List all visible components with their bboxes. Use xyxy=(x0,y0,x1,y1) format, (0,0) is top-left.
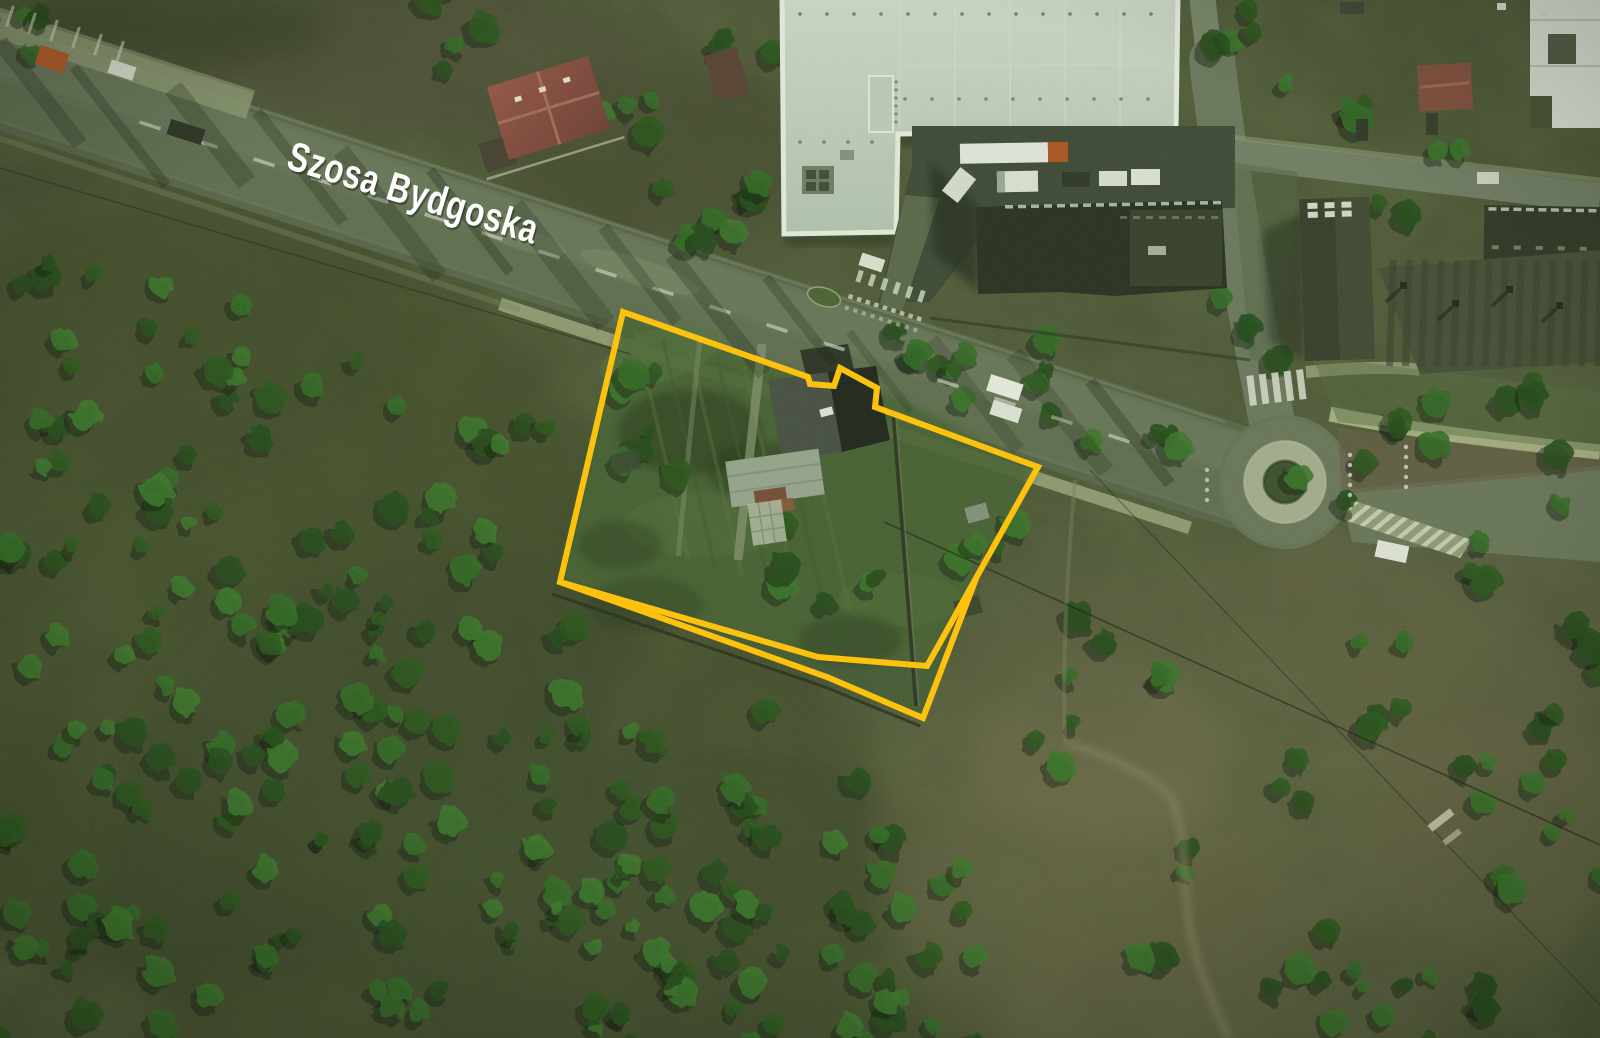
aerial-map-image: Szosa Bydgoska Szosa Bydgoska xyxy=(0,0,1600,1038)
aerial-photo-canvas: Szosa Bydgoska Szosa Bydgoska xyxy=(0,0,1600,1038)
vignette xyxy=(0,0,1600,1038)
